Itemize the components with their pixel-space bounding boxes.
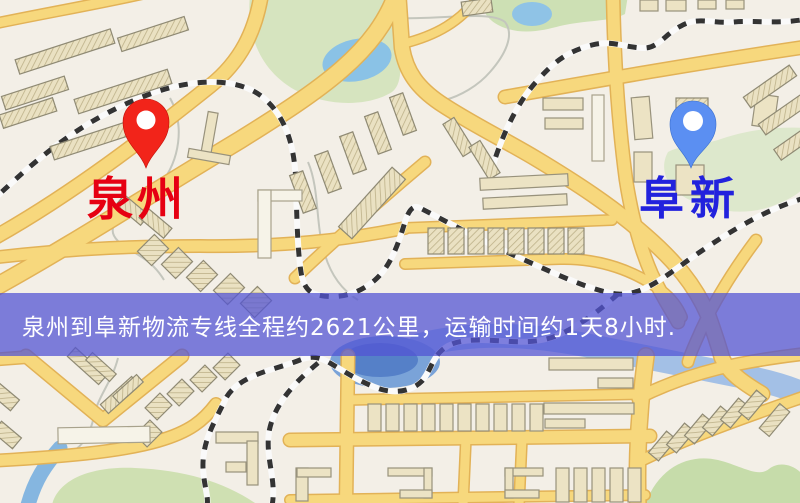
building xyxy=(598,378,633,388)
building xyxy=(505,490,539,498)
origin-pin-hole xyxy=(137,111,156,130)
building xyxy=(297,468,331,477)
building xyxy=(458,404,471,431)
building xyxy=(145,393,172,420)
logistics-route-map: 泉州 阜新 泉州到阜新物流专线全程约2621公里，运输时间约1天8小时. xyxy=(0,0,800,503)
building xyxy=(592,95,604,161)
route-info-banner: 泉州到阜新物流专线全程约2621公里，运输时间约1天8小时. xyxy=(0,293,800,356)
building xyxy=(118,17,189,52)
road xyxy=(463,438,466,503)
green-area xyxy=(52,468,258,503)
building xyxy=(386,404,399,431)
building xyxy=(448,228,464,254)
building xyxy=(544,403,634,414)
building xyxy=(400,490,432,498)
building xyxy=(494,404,507,431)
building xyxy=(640,0,658,11)
building xyxy=(340,132,367,174)
building xyxy=(528,228,544,254)
building xyxy=(247,441,258,485)
destination-label: 阜新 xyxy=(639,172,741,225)
building xyxy=(543,98,583,110)
building xyxy=(15,29,115,74)
route-info-text: 泉州到阜新物流专线全程约2621公里，运输时间约1天8小时. xyxy=(22,308,676,342)
building xyxy=(476,404,489,431)
building xyxy=(0,383,19,410)
building xyxy=(365,112,392,154)
building xyxy=(549,358,633,370)
building xyxy=(315,151,342,193)
building xyxy=(368,404,381,431)
building xyxy=(190,365,217,392)
map-base-layer xyxy=(0,0,800,503)
building xyxy=(726,0,744,9)
building xyxy=(404,404,417,431)
building xyxy=(592,468,605,502)
road xyxy=(346,394,645,400)
building xyxy=(258,190,271,258)
building xyxy=(0,421,21,448)
building xyxy=(556,468,569,502)
building xyxy=(631,96,653,139)
building xyxy=(545,419,585,428)
road xyxy=(346,356,348,503)
building xyxy=(390,93,417,135)
green-area xyxy=(645,458,800,503)
building xyxy=(422,404,435,431)
building xyxy=(440,404,453,431)
map-canvas: 泉州 阜新 xyxy=(0,0,800,503)
building xyxy=(530,404,543,431)
building xyxy=(488,228,504,254)
origin-label: 泉州 xyxy=(87,172,187,226)
building xyxy=(428,228,444,254)
building xyxy=(628,468,641,502)
building xyxy=(167,379,194,406)
building xyxy=(548,228,564,254)
building xyxy=(545,118,583,129)
building xyxy=(186,260,217,291)
building xyxy=(483,194,567,209)
destination-pin-hole xyxy=(683,111,703,131)
building xyxy=(698,0,716,9)
building xyxy=(508,228,524,254)
water-pond xyxy=(512,2,552,26)
building xyxy=(666,0,686,11)
building xyxy=(137,234,168,265)
building xyxy=(58,426,150,444)
building xyxy=(610,468,623,502)
building xyxy=(468,228,484,254)
building xyxy=(512,404,525,431)
building xyxy=(226,462,246,472)
building xyxy=(574,468,587,502)
building xyxy=(213,353,240,380)
building xyxy=(568,228,584,254)
